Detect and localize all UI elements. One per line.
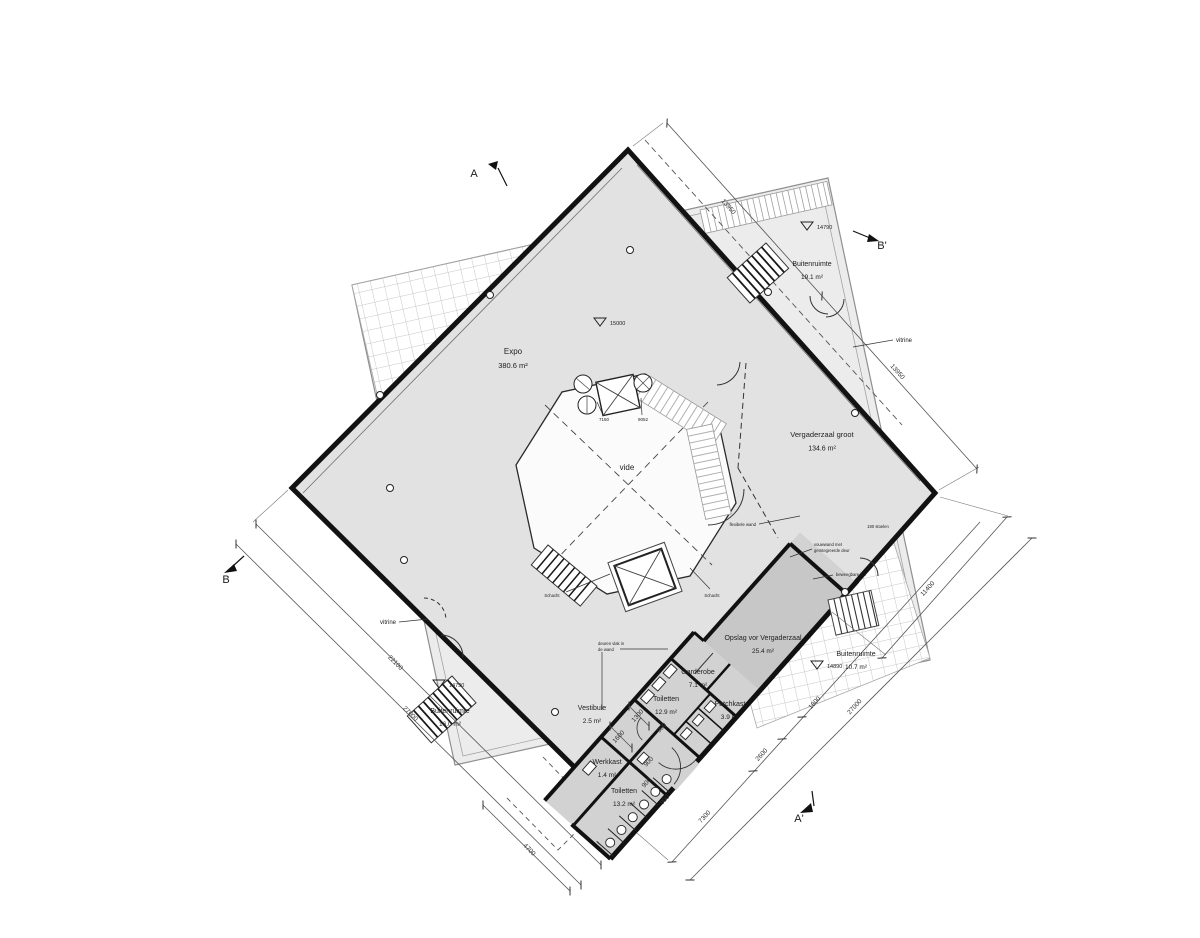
room-name: Toiletten	[611, 788, 637, 795]
level-value: 14790	[817, 225, 832, 231]
room-name: Werkkast	[592, 759, 621, 766]
section-arrow-icon	[800, 803, 813, 813]
room-area: 16.0 m²	[439, 721, 462, 728]
room-name: Buitenruimte	[836, 651, 875, 658]
room-name: Garderobe	[681, 669, 715, 676]
annotation-label: vouwwand met	[814, 542, 843, 547]
level-value: 15000	[610, 321, 625, 327]
section-label: B	[222, 574, 229, 586]
floor-plan-canvas: Expo380.6 m²Buitenruimte19.1 m²Vergaderz…	[0, 0, 1200, 938]
room-area: 12.9 m²	[655, 709, 678, 716]
room-name: Opslag vor Vergaderzaal	[724, 635, 801, 642]
annotation-label: Schacht	[544, 593, 560, 598]
section-mark-line	[498, 168, 507, 186]
room-name: Vergaderzaal groot	[790, 430, 854, 439]
room-area: 25.4 m²	[752, 648, 775, 655]
section-arrow-icon	[488, 161, 498, 170]
section-mark-line	[233, 556, 244, 566]
room-area: 10.7 m²	[845, 664, 868, 671]
floor-plan: Expo380.6 m²Buitenruimte19.1 m²Vergaderz…	[0, 0, 1200, 938]
room-name: Vestibule	[578, 705, 607, 712]
dimension-text: 11400	[919, 580, 936, 598]
annotation-label: 180 stoelen	[867, 524, 889, 529]
section-label: A	[470, 168, 478, 180]
elevator-shaft-upper	[596, 374, 640, 415]
annotation-label: vide	[620, 463, 635, 472]
annotation-label: 9052	[638, 417, 649, 422]
section-label: B'	[877, 240, 886, 252]
annotation-label: Schacht	[704, 593, 720, 598]
annotation-label: vitrine	[380, 620, 397, 626]
annotation-label: 7150	[599, 417, 610, 422]
room-name: Buitenruimte	[430, 708, 469, 715]
room-area: 2.5 m²	[583, 718, 602, 725]
room-area: 134.6 m²	[808, 446, 836, 453]
section-mark-line	[812, 791, 814, 806]
room-name: Patchkast	[715, 701, 746, 708]
dimension-text: 22100	[386, 654, 404, 672]
room-area: 19.1 m²	[801, 274, 824, 281]
section-mark-line	[853, 231, 870, 238]
room-name: Buitenruimte	[792, 261, 831, 268]
room-area: 7.1 m²	[689, 682, 708, 689]
section-label: A'	[794, 813, 803, 825]
room-name: Expo	[504, 347, 523, 356]
room-area: 1.4 m²	[598, 772, 617, 779]
annotation-label: beweegbare bar	[836, 572, 867, 577]
room-area: 13.2 m²	[613, 801, 636, 808]
dimension-tick	[1003, 517, 1012, 518]
annotation-label: vitrine	[896, 338, 913, 344]
level-value: 14890	[827, 664, 842, 670]
annotation-label: geïntegreerde deur	[814, 548, 850, 553]
annotation-label: de wand	[598, 647, 615, 652]
room-area: 380.6 m²	[498, 361, 528, 370]
dimension-text: 7300	[697, 809, 712, 825]
dimension-text: 27000	[846, 698, 864, 716]
dimension-text: 2600	[754, 747, 769, 763]
level-value: 14790	[449, 683, 464, 689]
section-arrow-icon	[224, 564, 237, 573]
annotation-label: flexibele wand	[729, 522, 756, 527]
dimension-text: 13950	[888, 363, 906, 381]
dimension-tick	[878, 658, 887, 659]
room-area: 3.9 m²	[721, 714, 740, 721]
annotation-label: deuren vlak in	[598, 641, 625, 646]
room-name: Toiletten	[653, 696, 679, 703]
